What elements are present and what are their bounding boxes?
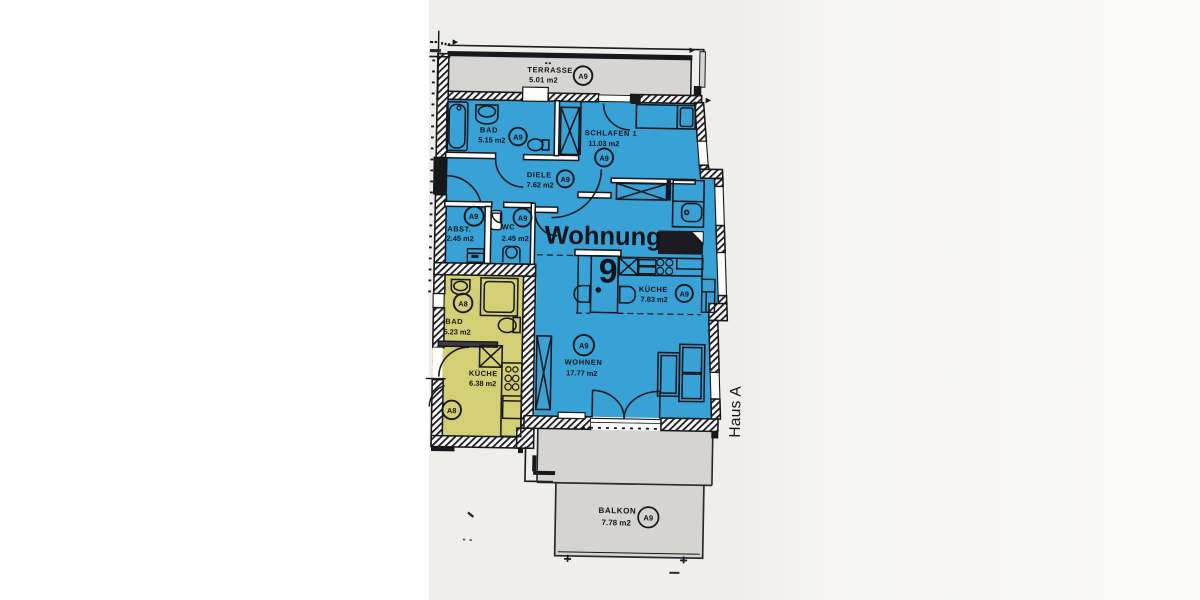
svg-text:ABST.: ABST. — [447, 224, 471, 233]
svg-text:A9: A9 — [579, 341, 589, 350]
svg-text:Wohnung: Wohnung — [544, 221, 662, 251]
svg-text:WC: WC — [502, 222, 516, 231]
svg-text:BALKON: BALKON — [598, 506, 636, 516]
svg-text:A8: A8 — [447, 406, 457, 415]
svg-text:9: 9 — [598, 252, 618, 290]
svg-text:A8: A8 — [458, 299, 468, 308]
svg-text:7.63 m2: 7.63 m2 — [641, 295, 668, 304]
svg-text:WOHNEN: WOHNEN — [565, 357, 603, 367]
svg-text:A9: A9 — [679, 290, 689, 299]
svg-text:A9: A9 — [578, 72, 588, 81]
svg-text:A9: A9 — [518, 214, 528, 223]
svg-text:5.23 m2: 5.23 m2 — [443, 327, 470, 336]
svg-text:2.45 m2: 2.45 m2 — [502, 234, 529, 243]
svg-text:5.15 m2: 5.15 m2 — [478, 135, 505, 144]
svg-text:A9: A9 — [560, 175, 570, 184]
svg-text:2.45 m2: 2.45 m2 — [447, 234, 474, 243]
svg-text:A9: A9 — [469, 212, 479, 221]
svg-text:KÜCHE: KÜCHE — [639, 285, 668, 295]
svg-text:17.77 m2: 17.77 m2 — [566, 368, 597, 378]
svg-text:KÜCHE: KÜCHE — [469, 369, 498, 379]
svg-text:5.01 m2: 5.01 m2 — [529, 75, 558, 85]
svg-text:BAD: BAD — [480, 125, 499, 134]
svg-text:7.62 m2: 7.62 m2 — [526, 180, 553, 189]
svg-text:SCHLAFEN 1: SCHLAFEN 1 — [585, 128, 638, 138]
svg-text:A9: A9 — [599, 154, 609, 163]
svg-text:11.03 m2: 11.03 m2 — [588, 139, 619, 149]
svg-text:7.78 m2: 7.78 m2 — [601, 518, 631, 528]
svg-text:TERRASSE: TERRASSE — [527, 65, 573, 75]
svg-text:BAD: BAD — [445, 317, 463, 326]
svg-text:A9: A9 — [643, 513, 653, 522]
svg-text:A9: A9 — [513, 133, 523, 142]
svg-text:DIELE: DIELE — [527, 170, 552, 179]
svg-text:Haus A: Haus A — [727, 385, 745, 437]
svg-text:6.38 m2: 6.38 m2 — [469, 379, 496, 388]
